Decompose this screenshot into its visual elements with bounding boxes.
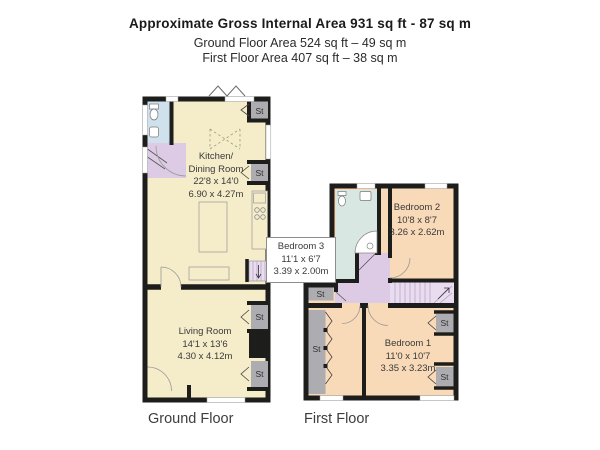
first-floor-area-text: First Floor Area 407 sq ft – 38 sq m xyxy=(0,51,600,66)
page-title: Approximate Gross Internal Area 931 sq f… xyxy=(0,16,600,31)
first-floor-caption: First Floor xyxy=(304,411,369,427)
header: Approximate Gross Internal Area 931 sq f… xyxy=(0,16,600,66)
zigzag-break-line xyxy=(209,86,245,96)
first-floor-plan: Bedroom 2 10'8 x 8'7 3.26 x 2.62m Bedroo… xyxy=(300,180,460,406)
ff-storage-b1-bottom xyxy=(436,367,454,386)
toilet-icon xyxy=(150,104,159,109)
ff-sink-icon xyxy=(360,192,371,201)
floorplan-page: Approximate Gross Internal Area 931 sq f… xyxy=(0,0,600,450)
ff-storage-landing xyxy=(309,288,334,301)
ground-floor-drawing xyxy=(141,83,273,405)
dining-furniture xyxy=(189,267,229,280)
ground-floor-area-text: Ground Floor Area 524 sq ft – 49 sq m xyxy=(0,36,600,51)
sink-icon xyxy=(150,127,159,137)
ff-storage-b1-top xyxy=(436,314,454,332)
ground-floor-caption: Ground Floor xyxy=(148,411,233,427)
bedroom3-storage-strip xyxy=(309,310,326,394)
ff-toilet-icon xyxy=(338,192,346,196)
kitchen-island xyxy=(199,202,227,252)
gf-storage-2 xyxy=(251,164,268,181)
first-floor-drawing xyxy=(300,180,460,406)
ground-floor-plan: Kitchen/ Dining Room 22'8 x 14'0 6.90 x … xyxy=(141,83,273,405)
bedroom3-label: Bedroom 3 11'1 x 6'7 3.39 x 2.00m xyxy=(266,237,336,283)
gf-storage-3 xyxy=(251,305,268,329)
gf-storage-4 xyxy=(251,361,268,387)
gf-storage-1 xyxy=(251,102,268,119)
